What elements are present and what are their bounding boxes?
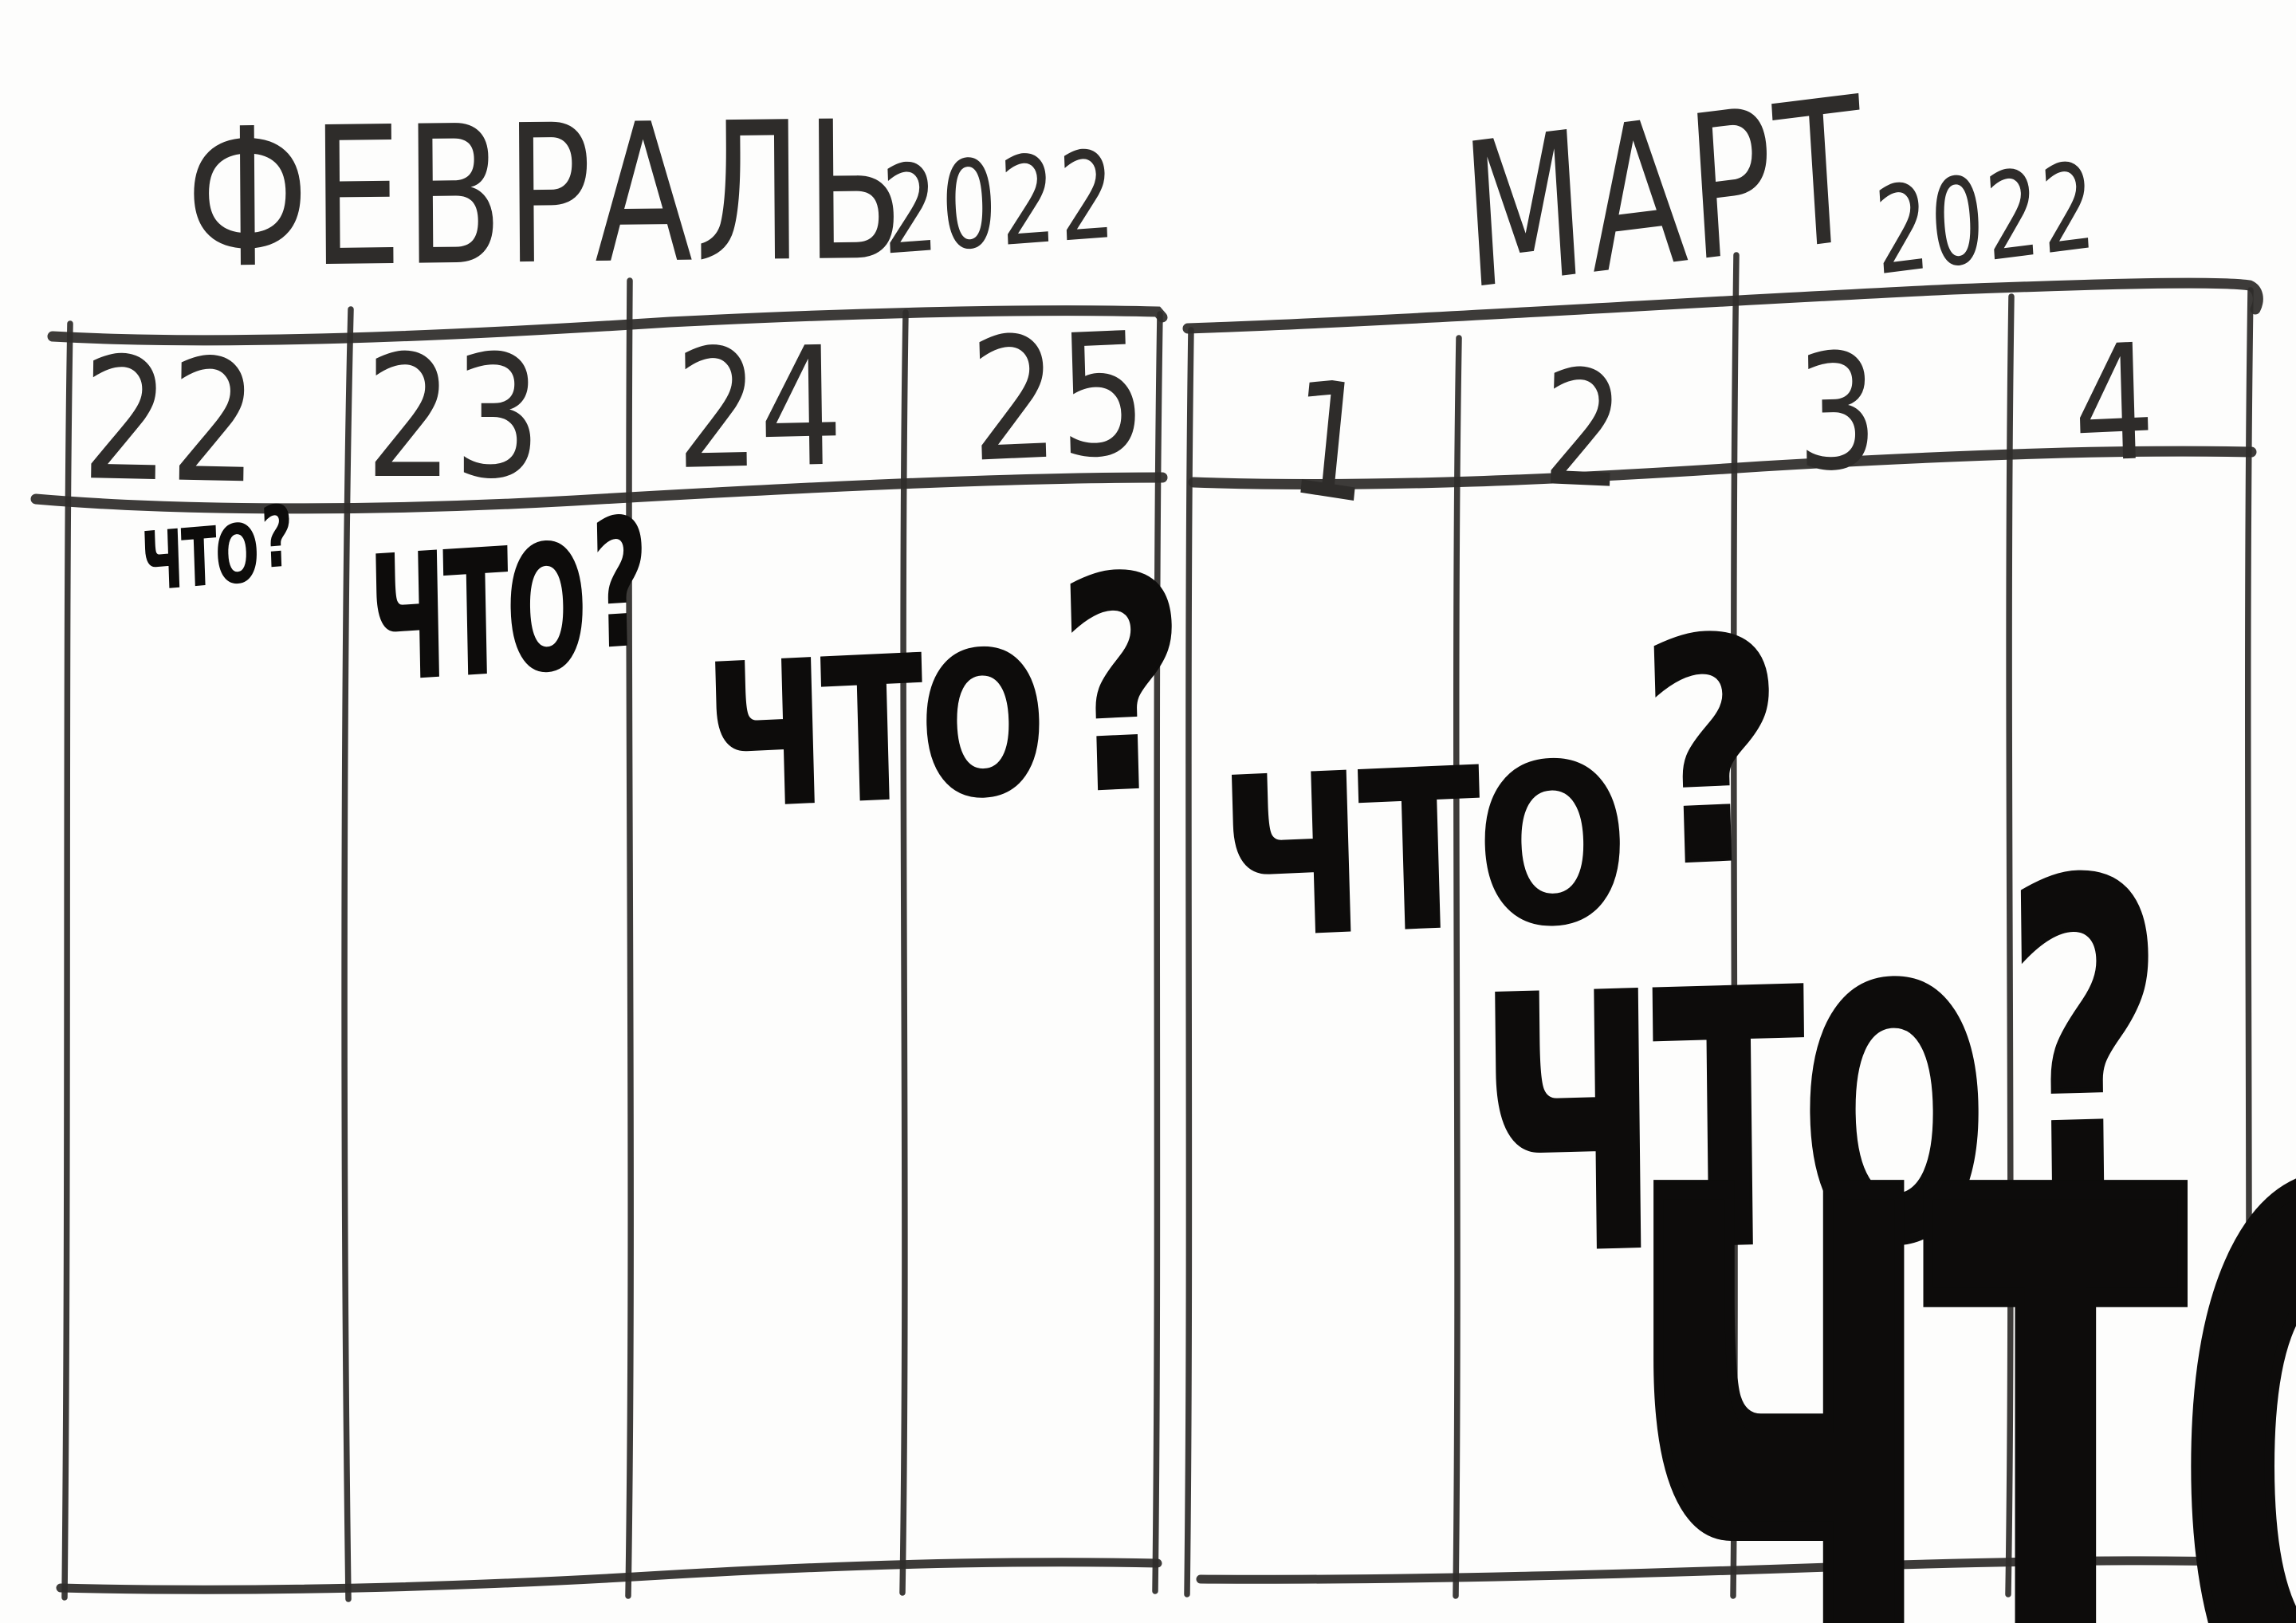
february-table-bottom-border bbox=[61, 1562, 1158, 1590]
march-table-left-edge bbox=[1187, 330, 1191, 1594]
day-label-feb-22: 22 bbox=[81, 335, 259, 508]
day-label-mar-3: 3 bbox=[1795, 333, 1879, 494]
what-text-feb-22-small: ЧТО? bbox=[140, 508, 293, 603]
february-table-left-edge bbox=[65, 324, 70, 1597]
day-label-feb-23: 23 bbox=[365, 333, 541, 502]
february-column-line-3 bbox=[902, 312, 906, 1593]
hand-drawn-calendar-illustration: ФЕВРАЛЬ 2022 22 23 24 25 ЧТО? ЧТО? ЧТО? … bbox=[0, 0, 2296, 1623]
what-text-feb-24-25-large: ЧТО? bbox=[702, 539, 1187, 852]
february-table-right-edge bbox=[1155, 314, 1160, 1591]
question-mark: ? bbox=[1056, 539, 1187, 836]
february-column-line-2 bbox=[628, 281, 631, 1596]
what-text-feb-23-medium: ЧТО? bbox=[368, 515, 648, 707]
february-year-label: 2022 bbox=[880, 134, 1120, 272]
day-label-feb-24: 24 bbox=[674, 324, 844, 493]
day-label-feb-25: 25 bbox=[968, 310, 1149, 486]
what-word: ЧТО bbox=[1628, 1039, 2296, 1623]
question-mark: ? bbox=[591, 496, 648, 674]
day-label-mar-1: 1 bbox=[1283, 357, 1379, 528]
february-column-line-1 bbox=[344, 309, 351, 1599]
question-mark: ? bbox=[261, 495, 293, 581]
question-mark: ? bbox=[1637, 599, 1787, 911]
day-label-mar-2: 2 bbox=[1540, 349, 1626, 512]
march-year-label: 2022 bbox=[1872, 146, 2101, 293]
what-word: ЧТО bbox=[368, 507, 587, 721]
february-month-title: ФЕВРАЛЬ bbox=[185, 95, 906, 295]
march-month-title: МАРТ bbox=[1457, 70, 1873, 318]
what-word: ЧТО bbox=[140, 506, 260, 609]
day-label-mar-4: 4 bbox=[2071, 324, 2156, 486]
what-text-mar-giant-cutoff: ЧТО bbox=[1628, 1102, 2296, 1623]
what-word: ЧТО bbox=[703, 609, 1046, 853]
